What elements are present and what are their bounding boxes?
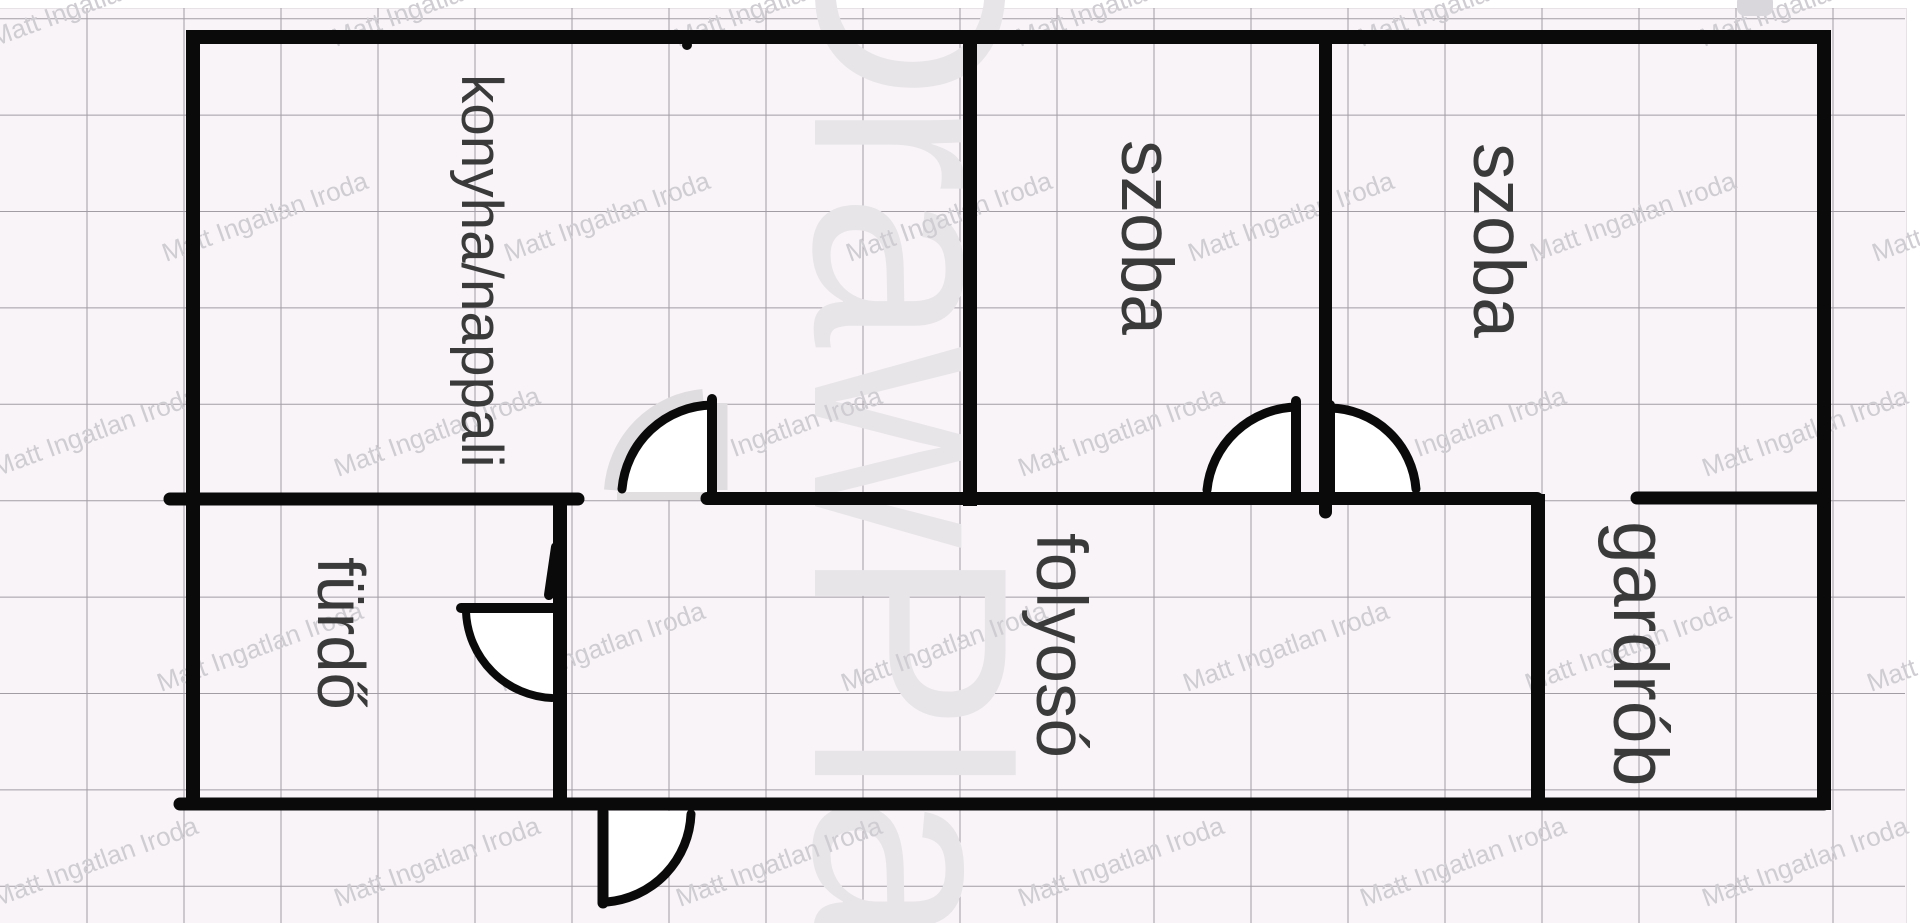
- svg-text:fürdő: fürdő: [303, 557, 378, 710]
- svg-text:konyha/nappali: konyha/nappali: [449, 74, 514, 468]
- svg-text:folyosó: folyosó: [1021, 533, 1100, 758]
- svg-text:gardrób: gardrób: [1597, 521, 1683, 786]
- svg-text:szoba: szoba: [1106, 140, 1187, 335]
- svg-text:szoba: szoba: [1458, 143, 1539, 338]
